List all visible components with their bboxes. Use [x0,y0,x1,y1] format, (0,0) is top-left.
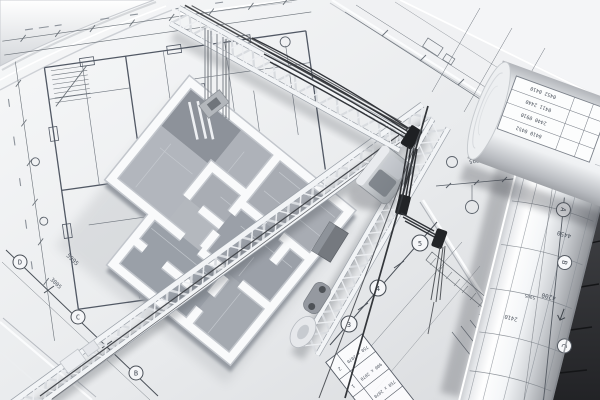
grid-bubble-D: D [18,259,22,267]
render-canvas: D C B 5995 3005 3 4 5 4200 750 x 2070 90… [0,0,600,400]
grid-bubble-C: C [76,314,80,322]
architectural-render-image: D C B 5995 3005 3 4 5 4200 750 x 2070 90… [0,0,600,400]
grid-bubble-B: B [134,370,138,378]
grid-bubble-5: 5 [418,240,422,248]
